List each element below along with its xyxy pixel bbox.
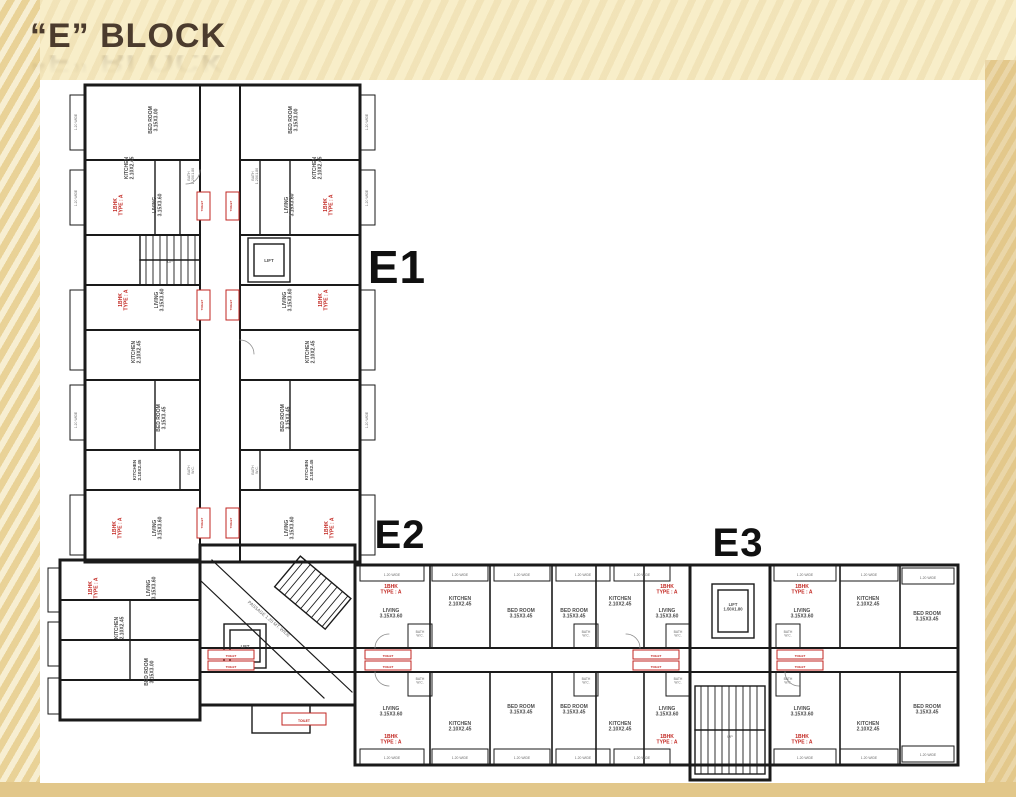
room-label: 1.20 WIDE bbox=[74, 411, 78, 428]
room-label: LIVING3.15X3.60 bbox=[380, 608, 403, 620]
room-label: 1.20 WIDE bbox=[365, 113, 369, 130]
flat-type-label: 1BHKTYPE : A bbox=[381, 734, 402, 746]
room-label: LIVING3.15X3.60 bbox=[656, 706, 679, 718]
room-label: UP bbox=[727, 734, 733, 739]
bottom-stripe-band bbox=[0, 782, 1016, 797]
room-label: 1.20 WIDE bbox=[514, 756, 531, 760]
room-label: KITCHEN2.10X2.45 bbox=[305, 340, 317, 363]
room-label: LIVING3.15X3.60 bbox=[791, 608, 814, 620]
flat-type-label: 1BHKTYPE : A bbox=[657, 734, 678, 746]
room-label: LIVING3.15X3.60 bbox=[380, 706, 403, 718]
room-label: 1.20 WIDE bbox=[452, 756, 469, 760]
flat-type-label: TOILET bbox=[795, 665, 806, 669]
room-label: KITCHEN2.10X2.45 bbox=[449, 596, 472, 608]
room-label: BED ROOM3.15X3.00 bbox=[288, 106, 300, 134]
room-label: 1.20 WIDE bbox=[452, 573, 469, 577]
flat-type-label: 1BHKTYPE : A bbox=[657, 584, 678, 596]
slide: { "slide": { "title": "“E” BLOCK" }, "co… bbox=[0, 0, 1016, 797]
room-label: LIVING3.15X3.60 bbox=[154, 288, 166, 311]
room-label: 1.20 WIDE bbox=[74, 113, 78, 130]
block-label: E1 bbox=[368, 241, 426, 293]
room-label: 1.20 WIDE bbox=[514, 573, 531, 577]
room-label: 1.20 WIDE bbox=[365, 411, 369, 428]
room-label: PASSAGE 1.20 MT. WIDE bbox=[247, 600, 291, 638]
page-title: “E” BLOCK bbox=[30, 18, 226, 55]
room-label: 1.20 WIDE bbox=[74, 189, 78, 206]
flat-type-label: TOILET bbox=[383, 654, 394, 658]
room-label: BATHW.C. bbox=[582, 677, 591, 685]
room-label: 1.20 WIDE bbox=[365, 189, 369, 206]
flat-type-label: 1BHKTYPE : A bbox=[318, 289, 330, 310]
room-label: BED ROOM3.15X3.45 bbox=[560, 704, 588, 716]
plan-walls bbox=[48, 85, 958, 780]
room-label: BATHW.C. bbox=[674, 630, 683, 638]
flat-type-label: TOILET bbox=[226, 665, 237, 669]
flat-type-label: TOILET bbox=[229, 201, 233, 212]
room-label: BATHW.C. bbox=[674, 677, 683, 685]
room-label: BATHW.C. bbox=[582, 630, 591, 638]
room-label: 1.20 WIDE bbox=[575, 756, 592, 760]
room-label: BED ROOM3.15X3.45 bbox=[507, 608, 535, 620]
room-label: 1.20 WIDE bbox=[920, 753, 937, 757]
room-label: LIVING3.15X3.60 bbox=[656, 608, 679, 620]
flat-type-label: TOILET bbox=[651, 665, 662, 669]
room-label: BATHW.C. bbox=[416, 630, 425, 638]
flat-type-label: TOILET bbox=[383, 665, 394, 669]
block-label: E2 bbox=[375, 513, 426, 557]
room-label: BATHW.C. bbox=[187, 465, 195, 475]
flat-type-label: TOILET bbox=[229, 300, 233, 311]
room-label: BATHW.C. bbox=[251, 465, 259, 475]
flat-type-label: 1BHKTYPE : A bbox=[792, 734, 813, 746]
room-label: LIVING3.15X3.60 bbox=[791, 706, 814, 718]
flat-type-label: 1BHKTYPE : A bbox=[88, 577, 100, 598]
room-label: BATH1.20X1.80 bbox=[187, 168, 195, 184]
room-label: 1.20 WIDE bbox=[920, 576, 937, 580]
floor-plan-svg: E1E2E3BED ROOM3.15X3.00BED ROOM3.15X3.00… bbox=[40, 80, 985, 783]
toilet-label-boxes bbox=[197, 192, 823, 725]
room-label: BED ROOM3.15X3.45 bbox=[913, 704, 941, 716]
flat-type-label: 1BHKTYPE : A bbox=[118, 289, 130, 310]
room-label: BED ROOM3.15X3.45 bbox=[560, 608, 588, 620]
room-label: LIFT1.50X1.80 bbox=[723, 602, 743, 612]
room-label: 1.20 WIDE bbox=[634, 756, 651, 760]
room-label: UP bbox=[167, 259, 173, 264]
flat-type-label: TOILET bbox=[229, 518, 233, 529]
flat-type-label: TOILET bbox=[795, 654, 806, 658]
room-label: KITCHEN2.10X2.45 bbox=[131, 340, 143, 363]
flat-type-label: TOILET bbox=[226, 654, 237, 658]
flat-type-label: TOILET bbox=[200, 201, 204, 212]
room-label: LIVING3.15X3.60 bbox=[284, 193, 296, 216]
flat-type-label: TOILET bbox=[200, 518, 204, 529]
room-label: KITCHEN2.10X2.45 bbox=[124, 156, 136, 179]
page-title-reflection: “E” BLOCK bbox=[30, 55, 226, 79]
room-label: LIVING3.15X3.60 bbox=[152, 516, 164, 539]
flat-type-label: 1BHKTYPE : A bbox=[113, 194, 125, 215]
room-label: KITCHEN2.10X2.45 bbox=[312, 156, 324, 179]
room-label: 1.20 WIDE bbox=[797, 756, 814, 760]
room-label: KITCHEN2.10X2.45 bbox=[857, 596, 880, 608]
room-label: LIVING3.15X3.60 bbox=[284, 516, 296, 539]
flat-type-label: 1BHKTYPE : A bbox=[324, 517, 336, 538]
room-label: BED ROOM3.15X3.45 bbox=[156, 404, 168, 432]
room-label: 1.20 WIDE bbox=[384, 573, 401, 577]
room-label: BATHW.C. bbox=[416, 677, 425, 685]
right-stripe-band bbox=[985, 60, 1016, 797]
room-label: BATHW.C. bbox=[784, 677, 793, 685]
room-label: KITCHEN2.10X2.45 bbox=[304, 459, 314, 480]
flat-type-label: TOILET bbox=[200, 300, 204, 311]
slide-title-block: “E” BLOCK “E” BLOCK bbox=[30, 18, 226, 79]
flat-type-label: TOILET bbox=[651, 654, 662, 658]
room-label: BED ROOM3.15X3.45 bbox=[913, 611, 941, 623]
e3-staircase bbox=[695, 686, 765, 774]
flat-type-label: TOILET bbox=[298, 719, 311, 723]
room-label: BED ROOM3.15X3.00 bbox=[148, 106, 160, 134]
room-label: 1.20 WIDE bbox=[861, 573, 878, 577]
room-label: BED ROOM3.15X3.45 bbox=[280, 404, 292, 432]
room-label: LIVING3.15X3.60 bbox=[282, 288, 294, 311]
room-label: KITCHEN2.10X2.45 bbox=[114, 616, 126, 639]
corner-staircase bbox=[275, 556, 351, 629]
room-label: BATH1.20X1.80 bbox=[251, 168, 259, 184]
flat-type-label: 1BHKTYPE : A bbox=[381, 584, 402, 596]
room-label: KITCHEN2.10X2.45 bbox=[609, 596, 632, 608]
left-stripe-band bbox=[0, 0, 40, 797]
block-label: E3 bbox=[713, 521, 764, 565]
room-label: LIVING3.15X3.60 bbox=[152, 193, 164, 216]
plan-canvas: E1E2E3BED ROOM3.15X3.00BED ROOM3.15X3.00… bbox=[40, 80, 985, 783]
flat-type-label: 1BHKTYPE : A bbox=[112, 517, 124, 538]
room-label: KITCHEN2.10X2.45 bbox=[857, 721, 880, 733]
room-label: BATHW.C. bbox=[784, 630, 793, 638]
flat-type-label: 1BHKTYPE : A bbox=[792, 584, 813, 596]
flat-type-label: 1BHKTYPE : A bbox=[323, 194, 335, 215]
room-label: BED ROOM3.15X3.45 bbox=[507, 704, 535, 716]
room-label: KITCHEN2.10X2.45 bbox=[449, 721, 472, 733]
room-label: 1.20 WIDE bbox=[634, 573, 651, 577]
room-label: KITCHEN2.10X2.45 bbox=[132, 459, 142, 480]
room-label: 1.20 WIDE bbox=[384, 756, 401, 760]
room-label: 1.20 WIDE bbox=[575, 573, 592, 577]
room-label: BED ROOM3.15X3.00 bbox=[144, 658, 156, 686]
room-label: LIFT bbox=[241, 644, 250, 649]
room-label: LIFT bbox=[264, 258, 274, 263]
room-label: KITCHEN2.10X2.45 bbox=[609, 721, 632, 733]
room-label: 1.20 WIDE bbox=[797, 573, 814, 577]
room-label: LIVING3.15X3.60 bbox=[146, 576, 158, 599]
room-label: 1.20 WIDE bbox=[861, 756, 878, 760]
